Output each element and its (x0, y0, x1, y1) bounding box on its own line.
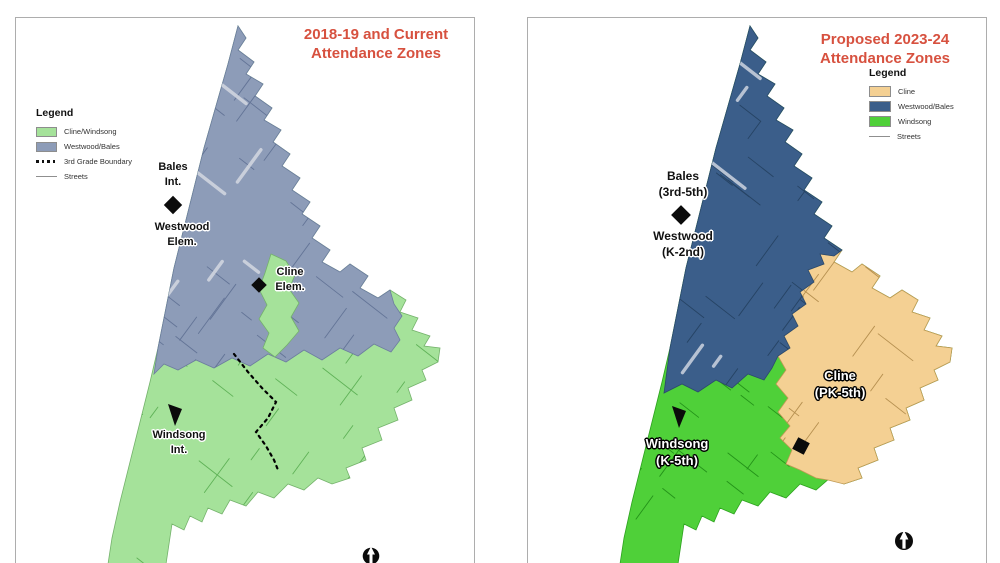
windsong-school-label: Windsong Int. (152, 428, 205, 457)
legend-item-cline-windsong: Cline/Windsong (36, 126, 132, 137)
map-title-line1: 2018-19 and Current (271, 25, 475, 44)
proposed-zones-map-panel: Proposed 2023-24 Attendance Zones Legend… (527, 17, 987, 563)
legend-item-streets: Streets (36, 171, 132, 182)
north-arrow-icon (363, 547, 380, 563)
legend-item-3rd-grade-boundary: 3rd Grade Boundary (36, 156, 132, 167)
cline-school-label: Cline Elem. (275, 265, 304, 294)
legend-title: Legend (869, 67, 954, 79)
tan-swatch (869, 86, 891, 97)
map-title: 2018-19 and Current Attendance Zones (271, 25, 475, 63)
westwood-school-label: Westwood Elem. (155, 220, 210, 249)
bales-school-marker-diamond (671, 205, 691, 225)
map-title-line1: Proposed 2023-24 (780, 30, 987, 49)
blue-swatch (36, 142, 57, 152)
street-line-icon (869, 136, 890, 137)
bales-school-label: Bales (3rd-5th) (659, 169, 708, 200)
dashed-line-icon (36, 160, 57, 163)
legend-item-windsong: Windsong (869, 116, 954, 127)
street-line-icon (36, 176, 57, 177)
blue-swatch (869, 101, 891, 112)
legend-item-westwood-bales: Westwood/Bales (869, 101, 954, 112)
legend-item-westwood-bales: Westwood/Bales (36, 141, 132, 152)
legend-item-cline: Cline (869, 86, 954, 97)
westwood-school-label: Westwood (K-2nd) (653, 229, 713, 260)
legend-item-streets: Streets (869, 131, 954, 142)
attendance-zones-maps: 2018-19 and Current Attendance Zones Leg… (0, 0, 1000, 563)
legend: Legend Cline Westwood/Bales Windsong Str… (869, 67, 954, 146)
legend: Legend Cline/Windsong Westwood/Bales 3rd… (36, 107, 132, 186)
green-swatch (36, 127, 57, 137)
bales-school-marker-diamond (164, 196, 182, 214)
cline-school-label: Cline (PK-5th) (815, 367, 866, 401)
bales-school-label: Bales Int. (158, 160, 187, 189)
legend-title: Legend (36, 107, 132, 119)
windsong-school-label: Windsong (K-5th) (646, 435, 709, 469)
map-title-line2: Attendance Zones (780, 49, 987, 68)
map-title-line2: Attendance Zones (271, 44, 475, 63)
current-zones-map-panel: 2018-19 and Current Attendance Zones Leg… (15, 17, 475, 563)
north-arrow-icon (895, 531, 913, 551)
current-zones-map (16, 18, 474, 563)
green-swatch (869, 116, 891, 127)
map-title: Proposed 2023-24 Attendance Zones (780, 30, 987, 68)
